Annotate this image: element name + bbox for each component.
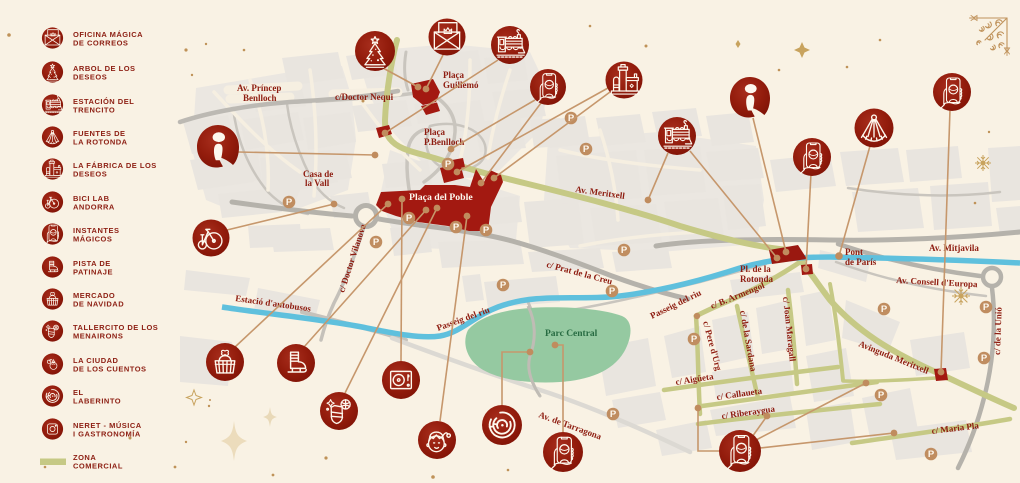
svg-text:Parc Central: Parc Central	[545, 329, 598, 339]
svg-text:COMERCIAL: COMERCIAL	[73, 461, 123, 470]
svg-text:LA ROTONDA: LA ROTONDA	[73, 138, 128, 147]
svg-text:DESEOS: DESEOS	[73, 170, 107, 179]
svg-text:DE NAVIDAD: DE NAVIDAD	[73, 300, 124, 309]
svg-text:Pont: Pont	[845, 247, 863, 257]
svg-text:DE CORREOS: DE CORREOS	[73, 39, 128, 48]
svg-text:Plaça del Poble: Plaça del Poble	[409, 192, 473, 203]
svg-text:MENAIRONS: MENAIRONS	[73, 332, 123, 341]
svg-text:PATINAJE: PATINAJE	[73, 268, 113, 277]
svg-text:Plaça: Plaça	[443, 70, 464, 80]
svg-text:DE LOS CUENTOS: DE LOS CUENTOS	[73, 365, 147, 374]
svg-text:c/ de la Unió: c/ de la Unió	[992, 306, 1004, 355]
svg-text:TRENCITO: TRENCITO	[73, 106, 115, 115]
svg-text:LABERINTO: LABERINTO	[73, 397, 121, 406]
svg-text:ANDORRA: ANDORRA	[73, 203, 115, 212]
svg-text:Av. Mitjavila: Av. Mitjavila	[929, 243, 979, 253]
svg-text:MÁGICOS: MÁGICOS	[73, 235, 112, 244]
svg-text:DESEOS: DESEOS	[73, 73, 107, 82]
svg-text:la Vall: la Vall	[305, 178, 330, 188]
svg-text:Av. Príncep: Av. Príncep	[237, 83, 281, 93]
svg-text:Plaça: Plaça	[424, 127, 445, 137]
svg-text:Guillemó: Guillemó	[443, 80, 479, 90]
svg-text:de París: de París	[845, 257, 877, 267]
svg-text:Pl. de la: Pl. de la	[740, 264, 771, 274]
svg-text:Benlloch: Benlloch	[243, 93, 277, 103]
